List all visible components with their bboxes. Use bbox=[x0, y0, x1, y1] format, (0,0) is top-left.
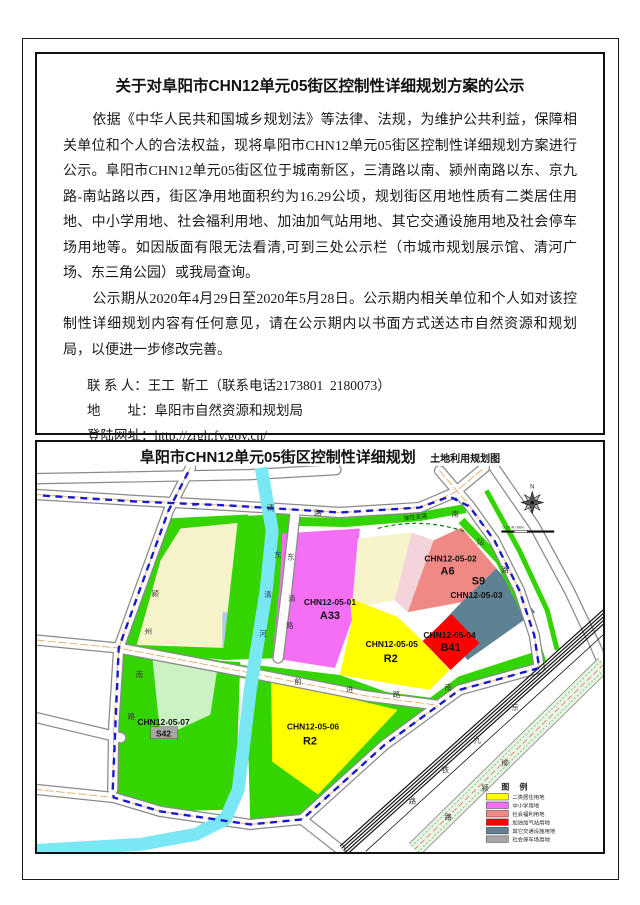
parcel-s9-use: S9 bbox=[472, 575, 485, 587]
legend-label-school: 中小学用地 bbox=[512, 801, 539, 809]
svg-text:清: 清 bbox=[288, 593, 296, 603]
svg-text:南: 南 bbox=[136, 669, 144, 679]
address-label: 地 址： bbox=[87, 403, 155, 418]
parcel-r2-05-use: R2 bbox=[384, 653, 398, 665]
notice-paragraph-2: 公示期从2020年4月29日至2020年5月28日。公示期内相关单位和个人如对该… bbox=[63, 287, 577, 364]
parcel-a33-use: A33 bbox=[320, 610, 340, 622]
svg-text:进: 进 bbox=[346, 685, 354, 694]
svg-text:南: 南 bbox=[445, 682, 453, 692]
legend-swatch-gas bbox=[486, 819, 508, 825]
parcel-s9-code: CHN12-05-03 bbox=[450, 590, 503, 600]
notice-panel: 关于对阜阳市CHN12单元05街区控制性详细规划方案的公示 依据《中华人民共和国… bbox=[35, 52, 605, 435]
svg-text:京: 京 bbox=[511, 702, 518, 712]
parcel-s42-use: S42 bbox=[156, 729, 171, 739]
scale-seg-1 bbox=[501, 530, 514, 532]
svg-text:铁: 铁 bbox=[442, 765, 450, 775]
address-line: 地 址：阜阳市自然资源和规划局 bbox=[87, 398, 603, 423]
svg-text:路: 路 bbox=[286, 620, 294, 630]
legend-label-residential: 二类居住用地 bbox=[512, 793, 545, 801]
legend-swatch-school bbox=[486, 802, 508, 808]
legend-swatch-welfare bbox=[486, 810, 508, 816]
svg-text:州: 州 bbox=[145, 627, 152, 636]
scale-seg-3 bbox=[527, 530, 554, 532]
svg-text:前: 前 bbox=[294, 676, 302, 686]
parcel-a6-code: CHN12-05-02 bbox=[424, 553, 477, 563]
contact-value: 王工 靳工（联系电话2173801 2180073） bbox=[148, 378, 391, 393]
notice-body: 依据《中华人民共和国城乡规划法》等法律、法规，为维护公共利益，保障相关单位和个人… bbox=[63, 108, 577, 363]
legend-label-transport: 其它交通设施用地 bbox=[512, 827, 556, 835]
legend-label-parking: 社会停车场用地 bbox=[512, 835, 550, 843]
parcel-a33-code: CHN12-05-01 bbox=[304, 597, 357, 607]
compass-center bbox=[530, 501, 534, 505]
land-use-map: 弹性支路 CHN12-05-01 A33 CHN12-05-02 A6 S9 C… bbox=[37, 466, 603, 852]
svg-text:九: 九 bbox=[473, 736, 481, 745]
legend-title: 图 例 bbox=[501, 782, 531, 792]
compass-north-label: N bbox=[530, 485, 534, 491]
svg-text:东: 东 bbox=[274, 549, 281, 559]
svg-text:河: 河 bbox=[259, 629, 267, 638]
scale-text: 0 20 40 80m bbox=[502, 524, 525, 529]
svg-text:路: 路 bbox=[128, 711, 136, 721]
contact-block: 联 系 人：王工 靳工（联系电话2173801 2180073） 地 址：阜阳市… bbox=[87, 373, 603, 448]
parcel-b41-code: CHN12-05-04 bbox=[423, 630, 476, 640]
parcel-r2-06-use: R2 bbox=[303, 736, 317, 748]
notice-paragraph-1: 依据《中华人民共和国城乡规划法》等法律、法规，为维护公共利益，保障相关单位和个人… bbox=[63, 108, 577, 287]
parcel-r2-06-code: CHN12-05-06 bbox=[287, 722, 340, 732]
parcel-r2-05-code: CHN12-05-05 bbox=[366, 639, 419, 649]
map-titlebar: 阜阳市CHN12单元05街区控制性详细规划 土地利用规划图 bbox=[37, 446, 603, 467]
svg-text:路: 路 bbox=[393, 689, 401, 699]
legend-label-gas: 加油加气站用地 bbox=[512, 818, 550, 826]
svg-text:三: 三 bbox=[190, 502, 197, 511]
map-subtitle: 土地利用规划图 bbox=[430, 454, 500, 465]
svg-text:柳: 柳 bbox=[501, 758, 508, 768]
svg-text:清: 清 bbox=[267, 503, 275, 513]
svg-text:路: 路 bbox=[409, 795, 417, 805]
svg-text:站: 站 bbox=[476, 536, 484, 546]
legend-label-welfare: 社会福利用地 bbox=[512, 810, 545, 818]
legend-swatch-residential bbox=[486, 794, 508, 800]
map-title: 阜阳市CHN12单元05街区控制性详细规划 bbox=[140, 449, 416, 466]
notice-page: 关于对阜阳市CHN12单元05街区控制性详细规划方案的公示 依据《中华人民共和国… bbox=[0, 0, 640, 905]
address-value: 阜阳市自然资源和规划局 bbox=[155, 403, 304, 418]
legend-swatch-transport bbox=[486, 827, 508, 833]
legend-swatch-parking bbox=[486, 836, 508, 842]
contact-line: 联 系 人：王工 靳工（联系电话2173801 2180073） bbox=[87, 373, 603, 398]
svg-text:颍: 颍 bbox=[481, 784, 489, 793]
svg-text:路: 路 bbox=[314, 508, 322, 518]
parcel-s42-code: CHN12-05-07 bbox=[137, 717, 190, 727]
svg-text:清: 清 bbox=[264, 589, 272, 599]
map-panel: 阜阳市CHN12单元05街区控制性详细规划 土地利用规划图 bbox=[35, 440, 605, 854]
svg-text:路: 路 bbox=[445, 811, 453, 821]
parcel-a6-use: A6 bbox=[441, 565, 455, 577]
svg-text:东: 东 bbox=[287, 551, 294, 561]
svg-text:路: 路 bbox=[501, 564, 509, 574]
notice-title: 关于对阜阳市CHN12单元05街区控制性详细规划方案的公示 bbox=[37, 74, 603, 96]
scale-seg-2 bbox=[514, 530, 527, 532]
svg-text:南: 南 bbox=[452, 509, 460, 519]
svg-text:颍: 颍 bbox=[152, 589, 160, 598]
contact-label: 联 系 人： bbox=[87, 378, 148, 393]
map-legend: 图 例 二类居住用地 中小学用地 社会福利用地 加油加气站用地 其它交通设施用地… bbox=[486, 782, 556, 844]
parcel-b41-use: B41 bbox=[440, 642, 460, 654]
